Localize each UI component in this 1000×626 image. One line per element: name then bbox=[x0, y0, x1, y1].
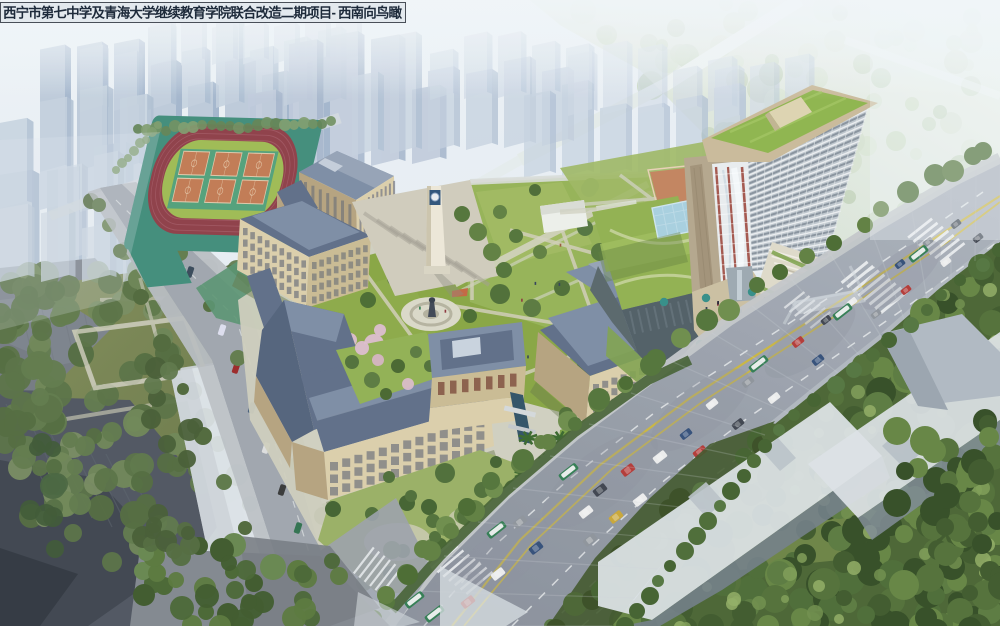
svg-text:西宁市第七中学及青海大学继续教育学院联合改造二期项目- 西南: 西宁市第七中学及青海大学继续教育学院联合改造二期项目- 西南向鸟瞰 bbox=[3, 5, 403, 21]
